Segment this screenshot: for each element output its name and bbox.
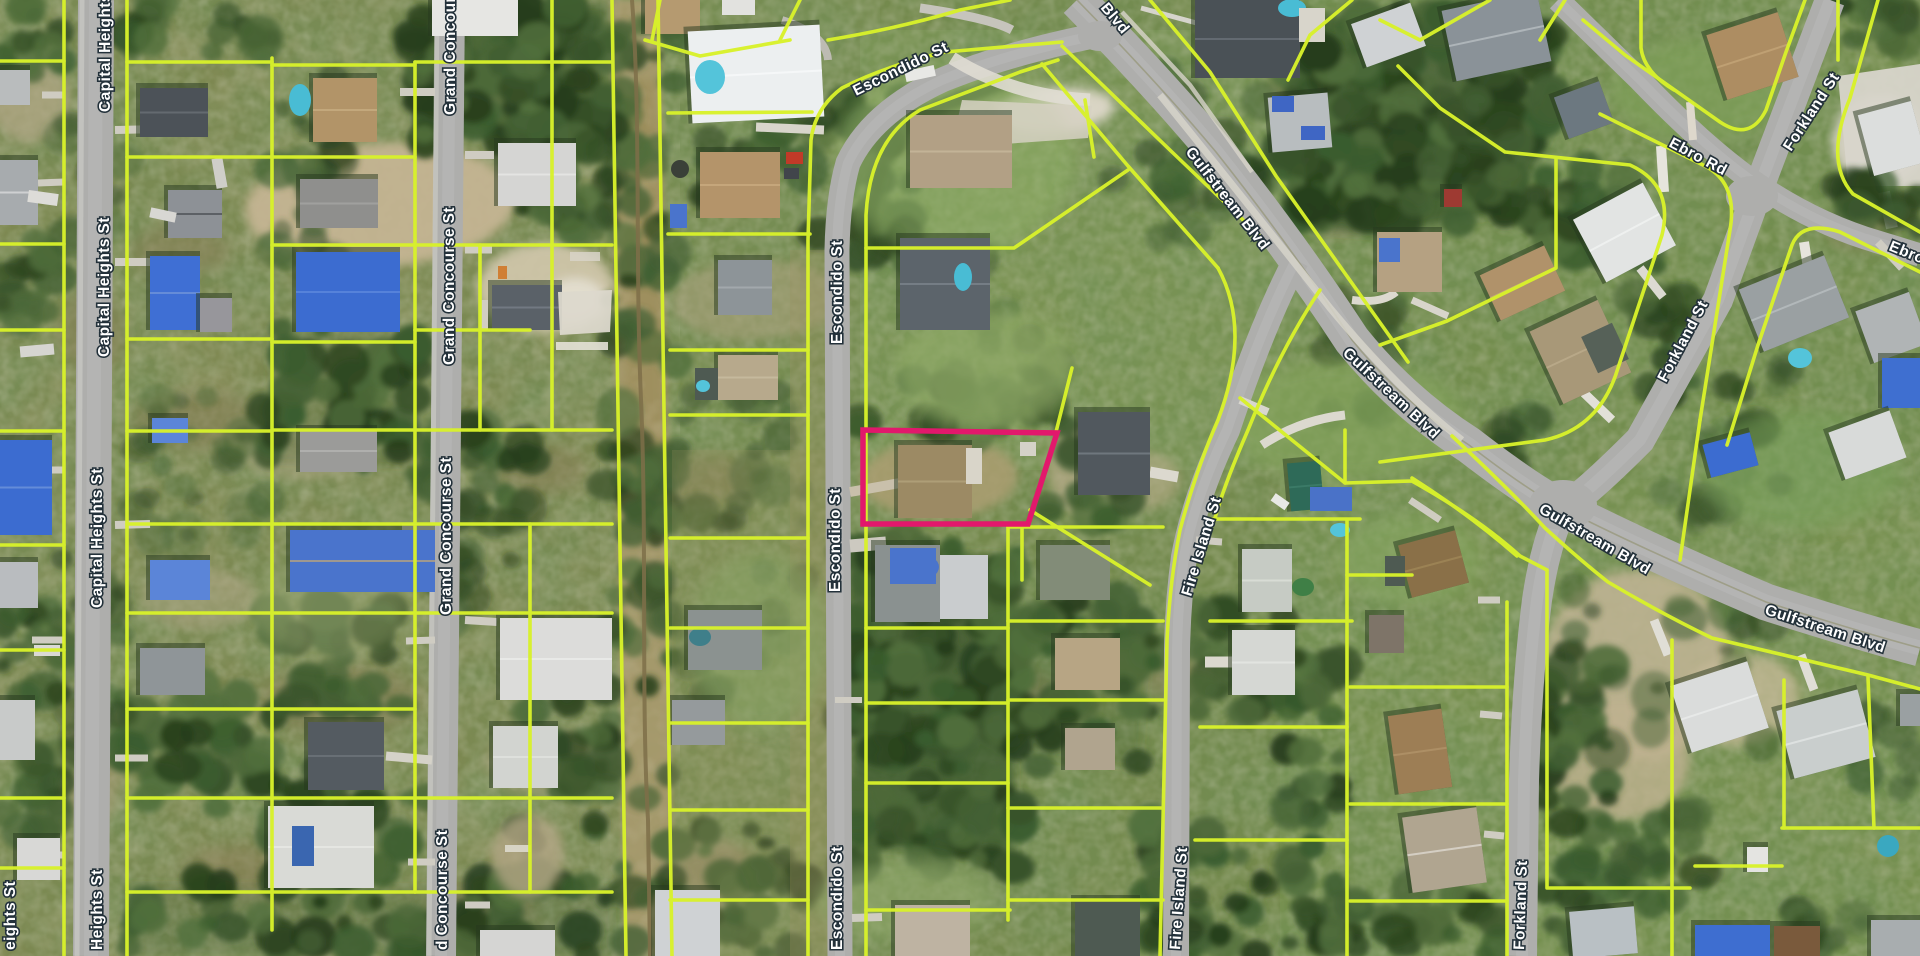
svg-text:Grand Concourse St: Grand Concourse St [441,207,458,365]
svg-text:Grand Concourse: Grand Concourse [442,0,459,115]
svg-text:Capital Heights St: Capital Heights St [89,468,106,608]
svg-text:Escondido St: Escondido St [829,240,846,344]
svg-text:Escondido St: Escondido St [827,488,844,592]
svg-text:Forkland St: Forkland St [1511,860,1531,950]
svg-text:Heights St: Heights St [89,869,106,950]
svg-text:Grand Concourse St: Grand Concourse St [438,457,455,615]
svg-text:d Concourse St: d Concourse St [434,830,451,950]
svg-text:Capital Heights St: Capital Heights St [96,217,113,357]
svg-text:Capital Heights S: Capital Heights S [97,0,114,112]
svg-text:eights St: eights St [2,881,19,950]
svg-text:Escondido St: Escondido St [829,846,846,950]
